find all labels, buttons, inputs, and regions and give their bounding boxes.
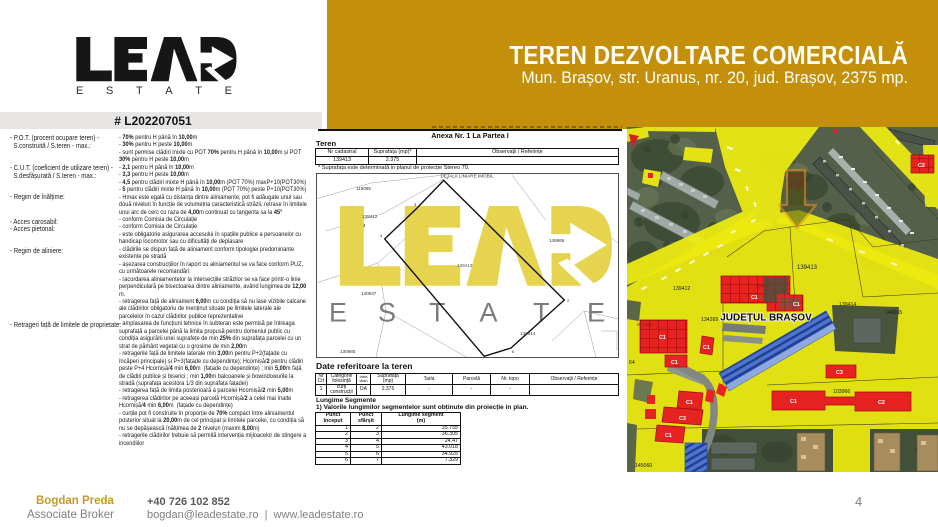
svg-text:DETALII LINIARE IMOBIL: DETALII LINIARE IMOBIL [440, 174, 493, 179]
svg-text:C1: C1 [665, 433, 672, 439]
svg-text:139413: 139413 [457, 263, 473, 268]
svg-text:134269: 134269 [701, 317, 718, 323]
svg-text:130937: 130937 [361, 291, 377, 296]
svg-text:A: A [480, 298, 498, 328]
svg-text:145965: 145965 [549, 238, 565, 243]
svg-text:146965: 146965 [885, 310, 902, 316]
svg-text:130985: 130985 [340, 349, 356, 354]
svg-text:T: T [533, 298, 550, 328]
svg-text:C1: C1 [686, 400, 693, 406]
svg-text:E: E [329, 298, 347, 328]
svg-text:T: T [429, 298, 446, 328]
svg-text:E: E [587, 298, 605, 328]
svg-text:64: 64 [629, 360, 635, 366]
svg-text:119085: 119085 [356, 186, 371, 191]
svg-text:C1: C1 [793, 302, 800, 308]
svg-text:JUDEȚUL BRAȘOV: JUDEȚUL BRAȘOV [720, 313, 812, 324]
svg-text:103966: 103966 [833, 389, 850, 395]
svg-text:C1: C1 [659, 335, 666, 341]
svg-text:C1: C1 [751, 295, 758, 301]
svg-text:139413: 139413 [797, 265, 818, 271]
svg-text:C3: C3 [836, 370, 843, 376]
svg-text:C3: C3 [679, 416, 686, 422]
svg-text:145060: 145060 [635, 463, 652, 469]
svg-text:4: 4 [363, 223, 366, 228]
svg-text:C2: C2 [878, 400, 885, 406]
svg-text:C1: C1 [703, 345, 710, 351]
svg-text:139412: 139412 [673, 286, 690, 292]
svg-text:139414: 139414 [520, 331, 536, 336]
svg-text:139414: 139414 [839, 302, 856, 308]
svg-text:139407: 139407 [755, 283, 771, 288]
svg-text:C2: C2 [918, 163, 925, 169]
svg-text:139412: 139412 [362, 214, 378, 219]
svg-text:017605: 017605 [637, 322, 653, 327]
svg-text:C1: C1 [790, 399, 797, 405]
svg-text:S: S [378, 298, 396, 328]
svg-text:C1: C1 [671, 360, 678, 366]
